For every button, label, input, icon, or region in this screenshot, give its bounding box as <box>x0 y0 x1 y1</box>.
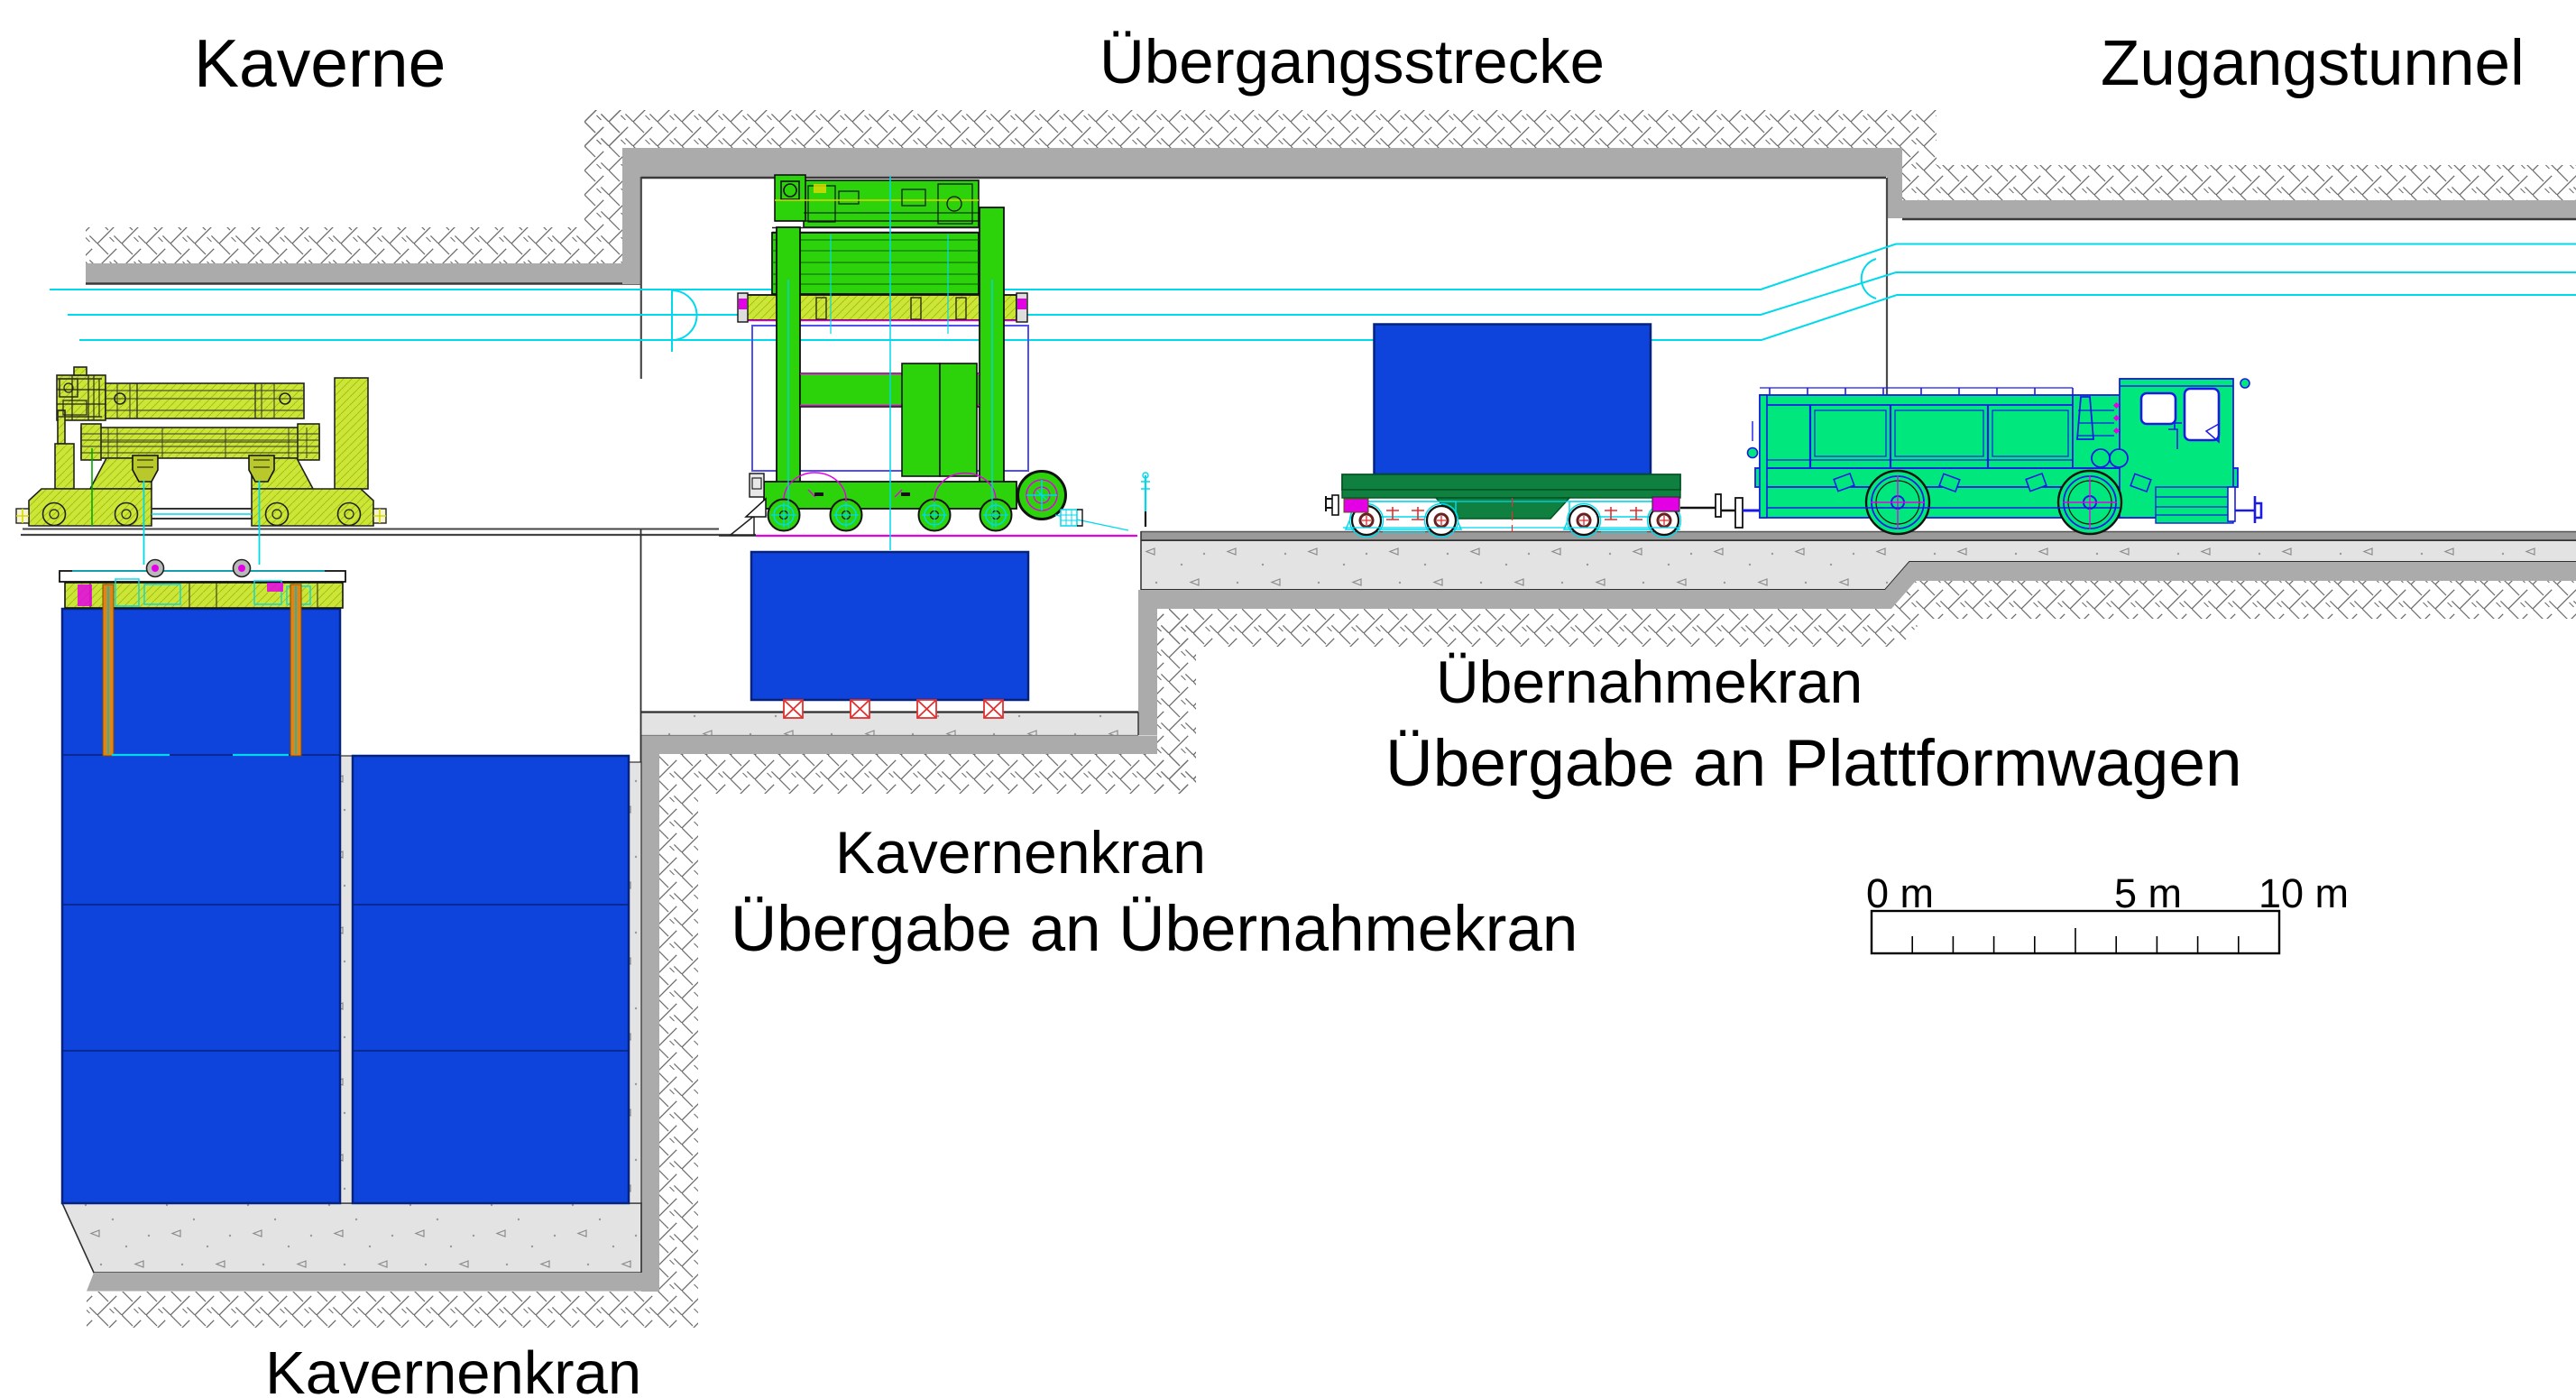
svg-text:5 m: 5 m <box>2114 870 2182 916</box>
svg-text:Übergabe an Plattformwagen: Übergabe an Plattformwagen <box>1385 727 2242 800</box>
svg-text:10 m: 10 m <box>2259 870 2349 916</box>
svg-text:0 m: 0 m <box>1866 870 1934 916</box>
svg-text:Übergabe an Übernahmekran: Übergabe an Übernahmekran <box>731 894 1578 965</box>
svg-text:Kavernenkran: Kavernenkran <box>835 819 1206 886</box>
svg-text:Übergangsstrecke: Übergangsstrecke <box>1099 27 1605 97</box>
svg-text:Kavernenkran: Kavernenkran <box>265 1339 641 1398</box>
svg-text:Kaverne: Kaverne <box>194 25 446 101</box>
svg-text:Übernahmekran: Übernahmekran <box>1436 648 1863 715</box>
svg-text:Zugangstunnel: Zugangstunnel <box>2101 28 2525 99</box>
